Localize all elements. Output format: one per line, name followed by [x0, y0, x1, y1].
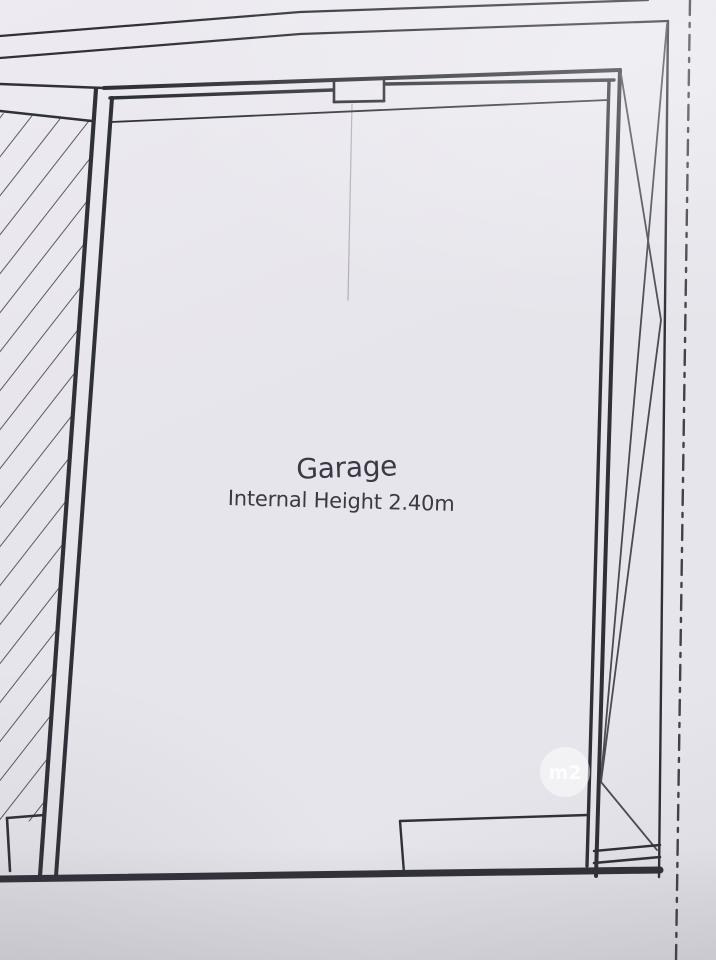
- right-boundary-vertical-line: [659, 21, 668, 877]
- notch-bottom-line: [334, 101, 384, 102]
- room-label: Garage: [296, 449, 398, 485]
- floor-step-top-line: [400, 815, 588, 821]
- hatched-wall-section: [0, 111, 93, 824]
- south-wall-line: [0, 870, 660, 879]
- dashed-site-boundary-line: [676, 0, 690, 960]
- right-bay-bracing: [594, 24, 667, 863]
- top-boundary-line-outer: [0, 0, 648, 36]
- north-wall-mid-line-left: [110, 90, 333, 98]
- bay-bottom-lower-line: [594, 857, 660, 863]
- floor-plan-drawing: Garage Internal Height 2.40m m2: [0, 0, 716, 960]
- step-side-line: [7, 818, 10, 871]
- notch-faint-guide-line: [348, 104, 352, 300]
- watermark-badge: m2: [540, 747, 590, 797]
- hatch-fill: [0, 113, 93, 824]
- left-wall-top-line: [0, 84, 104, 88]
- top-boundary-line-inner: [0, 21, 668, 58]
- room-note: Internal Height 2.40m: [228, 486, 455, 516]
- north-wall-inner-line: [111, 100, 608, 122]
- floor-step-side-line: [400, 821, 404, 873]
- north-wall-notch: [334, 81, 384, 300]
- bottom-left-step: [7, 815, 44, 871]
- north-wall-mid-line-right: [385, 80, 614, 84]
- north-wall-outer-line: [104, 70, 620, 88]
- watermark-text: m2: [548, 762, 581, 784]
- garage-floor-step: [400, 815, 588, 873]
- floor-plan-photo: Garage Internal Height 2.40m m2: [0, 0, 716, 960]
- bay-bottom-upper-line: [594, 845, 660, 851]
